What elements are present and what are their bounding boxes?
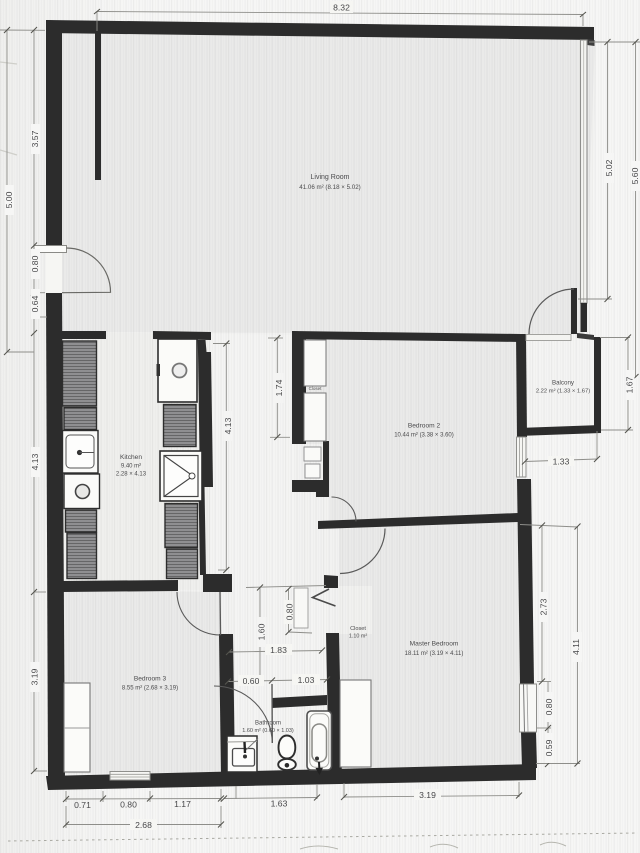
svg-text:Kitchen: Kitchen [120, 454, 142, 461]
svg-text:Living Room: Living Room [311, 174, 350, 181]
svg-text:Closet: Closet [309, 386, 323, 391]
svg-text:1.60 m² (0.60 × 1.03): 1.60 m² (0.60 × 1.03) [242, 728, 294, 734]
svg-text:Closet: Closet [350, 626, 366, 632]
svg-text:1.60: 1.60 [257, 623, 267, 640]
svg-text:1.17: 1.17 [174, 799, 191, 809]
svg-text:4.11: 4.11 [571, 639, 581, 655]
svg-text:1.03: 1.03 [298, 675, 315, 685]
svg-text:1.74: 1.74 [274, 379, 284, 396]
svg-text:Bedroom 3: Bedroom 3 [134, 676, 167, 683]
svg-text:2.22 m² (1.33 × 1.67): 2.22 m² (1.33 × 1.67) [536, 389, 590, 395]
svg-text:0.60: 0.60 [243, 676, 260, 686]
svg-text:8.55 m² (2.68 × 3.19): 8.55 m² (2.68 × 3.19) [122, 686, 178, 692]
svg-text:3.57: 3.57 [30, 130, 40, 147]
svg-text:Master Bedroom: Master Bedroom [410, 641, 459, 648]
svg-text:1.10 m²: 1.10 m² [349, 634, 367, 640]
svg-text:1.67: 1.67 [625, 376, 635, 393]
svg-text:5.60: 5.60 [630, 167, 640, 184]
svg-text:Bedroom 2: Bedroom 2 [408, 423, 441, 430]
svg-text:0.80: 0.80 [544, 698, 554, 715]
svg-text:0.59: 0.59 [544, 739, 554, 756]
svg-text:0.80: 0.80 [30, 255, 40, 272]
svg-text:1.33: 1.33 [553, 457, 570, 467]
svg-text:2.73: 2.73 [539, 598, 549, 615]
svg-text:Balcony: Balcony [552, 380, 575, 387]
svg-text:3.19: 3.19 [30, 668, 40, 685]
svg-text:0.71: 0.71 [74, 800, 91, 810]
svg-text:9.40 m²: 9.40 m² [121, 464, 141, 470]
svg-text:0.80: 0.80 [120, 800, 137, 810]
svg-text:41.06 m² (8.18 × 5.02): 41.06 m² (8.18 × 5.02) [299, 184, 360, 191]
svg-text:2.28 × 4.13: 2.28 × 4.13 [116, 472, 147, 478]
svg-text:1.83: 1.83 [270, 645, 287, 655]
svg-text:4.13: 4.13 [30, 453, 40, 470]
svg-text:0.64: 0.64 [30, 295, 40, 312]
svg-text:5.02: 5.02 [604, 159, 614, 176]
svg-text:10.44 m² (3.38 × 3.60): 10.44 m² (3.38 × 3.60) [394, 433, 454, 439]
svg-text:5.00: 5.00 [4, 191, 14, 208]
svg-text:1.63: 1.63 [271, 799, 288, 809]
svg-text:8.32: 8.32 [333, 3, 350, 13]
svg-text:2.68: 2.68 [135, 820, 152, 830]
svg-text:Bathroom: Bathroom [255, 721, 281, 727]
svg-text:18.11 m² (3.19 × 4.11): 18.11 m² (3.19 × 4.11) [405, 651, 464, 657]
svg-text:3.19: 3.19 [419, 790, 436, 800]
svg-text:4.13: 4.13 [223, 417, 233, 434]
svg-text:0.80: 0.80 [285, 603, 295, 620]
